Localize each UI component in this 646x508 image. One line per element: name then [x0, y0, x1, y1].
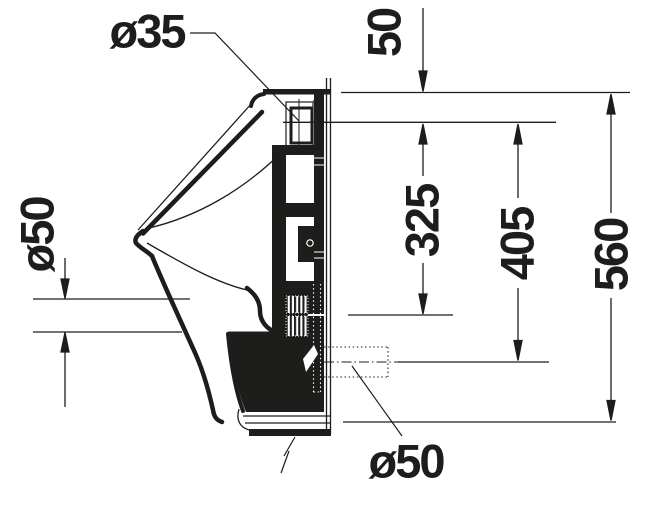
dim-label-inlet-diameter: ø35	[110, 8, 185, 55]
dim-label-overall-height: 560	[588, 219, 635, 291]
channel-connector	[283, 145, 314, 155]
arrowhead-down-icon	[607, 401, 615, 421]
mount-step-upper	[286, 203, 314, 217]
thread-block-upper	[286, 296, 308, 313]
sectioned-ceramic-fill	[230, 89, 331, 436]
dim-label-top-to-inlet: 50	[361, 9, 408, 57]
mount-step-lower	[298, 226, 324, 262]
arrowhead-up-icon	[514, 124, 522, 144]
top-left-corner	[251, 94, 264, 106]
arrowhead-up-icon	[61, 333, 69, 353]
technical-drawing-page: ø35 50 325 405 560 ø50 ø50	[0, 0, 646, 508]
thread-block-lower	[286, 316, 308, 336]
arrowhead-down-icon	[419, 71, 427, 92]
outer-shell	[152, 256, 222, 422]
leader-inlet-diameter	[190, 33, 299, 121]
dim-label-outlet-diameter-side: ø50	[14, 198, 61, 273]
arrowhead-down-icon	[514, 341, 522, 361]
inlet-spud-inner	[291, 108, 312, 143]
break-zigzag	[281, 437, 295, 473]
hidden-drain-pipe	[324, 347, 398, 377]
rim-outer-edge	[138, 103, 252, 230]
plinth-bottom-band	[249, 429, 331, 436]
dim-label-325: 325	[399, 185, 446, 257]
rim-inner-edge	[143, 112, 262, 234]
plinth-lines	[243, 416, 330, 423]
arrowhead-up-icon	[419, 124, 427, 144]
dim-label-outlet-diameter-bottom: ø50	[369, 438, 444, 485]
arrowhead-down-icon	[419, 294, 427, 314]
arrowhead-up-icon	[607, 94, 615, 114]
dim-label-405: 405	[494, 208, 541, 280]
urinal-side-section-drawing	[0, 0, 646, 508]
arrowhead-down-icon	[61, 279, 69, 299]
leader-outlet-diameter	[352, 366, 402, 436]
bowl-inner-curve-upper	[149, 150, 284, 228]
trap-mass	[230, 333, 324, 412]
